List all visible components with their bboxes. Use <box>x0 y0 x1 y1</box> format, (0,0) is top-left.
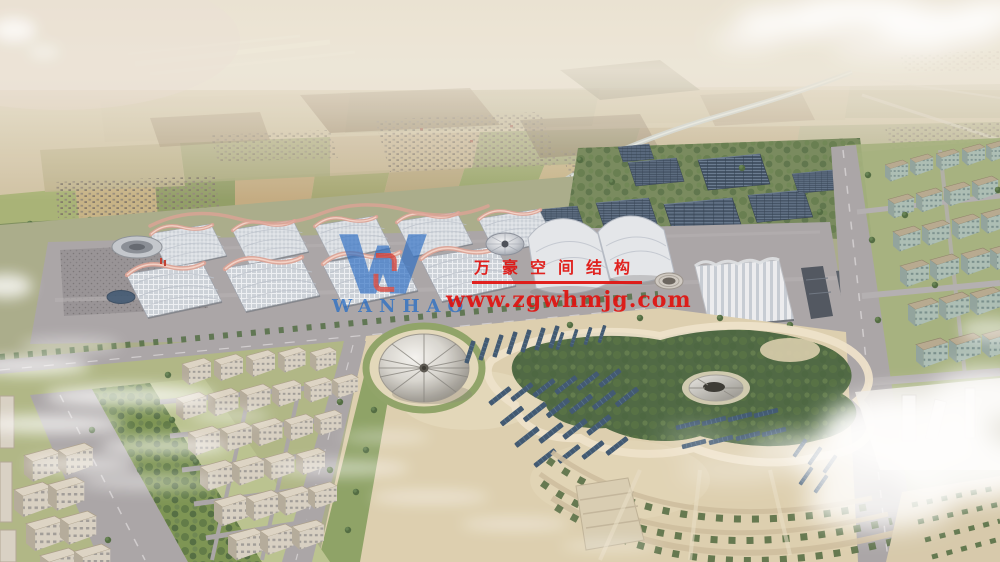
aerial-rendering: WANHAO 万豪空间结构 www.zgwhmjg.com <box>0 0 1000 562</box>
color-grade <box>0 0 1000 562</box>
scene-canvas <box>0 0 1000 562</box>
